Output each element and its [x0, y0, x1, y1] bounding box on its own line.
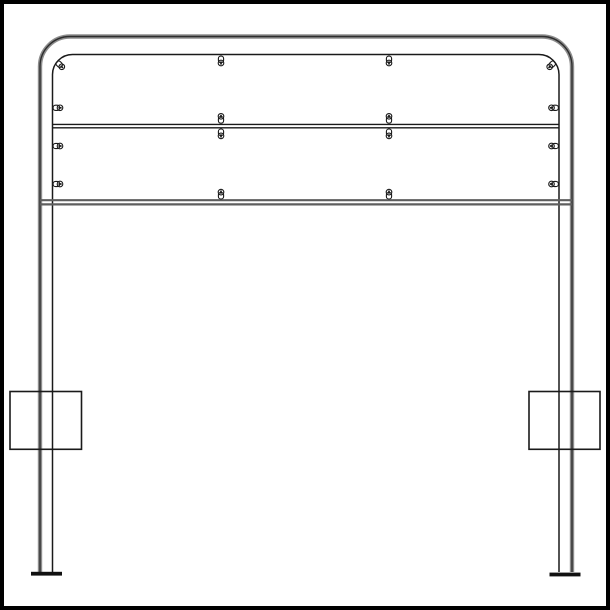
screw-fastener-icon — [55, 60, 66, 71]
screw-fastener-icon — [549, 105, 559, 111]
screw-fastener-icon — [53, 143, 63, 149]
left-foot-plate — [31, 572, 62, 576]
screw-fastener-icon — [549, 143, 559, 149]
screw-fastener-icon — [53, 105, 63, 111]
panel-divider-rail — [53, 124, 560, 127]
screw-fastener-icon — [386, 56, 392, 66]
bottom-rail — [40, 200, 572, 204]
tube-frame-outer-halo — [40, 37, 572, 573]
frame-elevation-drawing — [0, 0, 610, 610]
left-side-box — [10, 392, 82, 450]
tube-frame-outer-core — [40, 37, 572, 573]
screw-fastener-icon — [386, 114, 392, 124]
screw-fastener-icon — [386, 129, 392, 139]
tube-frame — [40, 37, 572, 573]
screw-fastener-icon — [218, 56, 224, 66]
image-border — [2, 2, 608, 608]
screw-fastener-icon — [386, 189, 392, 199]
screw-fastener-icon — [218, 129, 224, 139]
screw-fastener-icon — [53, 181, 63, 187]
screw-fastener-icon — [546, 60, 557, 71]
tube-frame-inner — [53, 55, 560, 573]
right-foot-plate — [550, 573, 581, 577]
screw-fastener-icon — [549, 181, 559, 187]
screw-fastener-icon — [218, 189, 224, 199]
right-side-box — [529, 392, 600, 450]
screw-fastener-icon — [218, 114, 224, 124]
technical-drawing-canvas — [0, 0, 610, 610]
